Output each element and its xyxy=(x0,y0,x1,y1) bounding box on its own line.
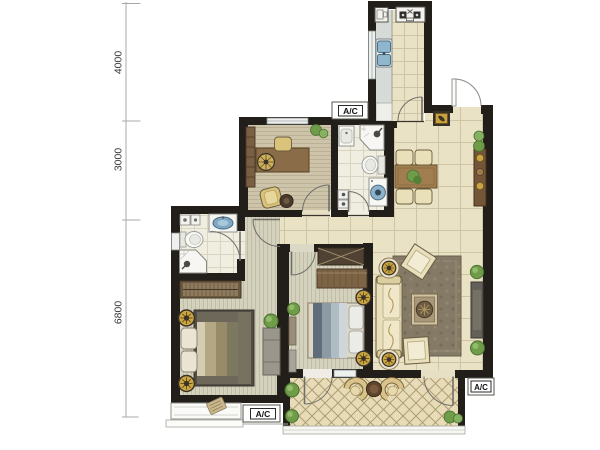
svg-text:A/C: A/C xyxy=(474,383,488,392)
svg-text:3000: 3000 xyxy=(113,148,125,172)
svg-text:A/C: A/C xyxy=(343,106,358,116)
svg-text:6800: 6800 xyxy=(113,301,125,325)
svg-text:A/C: A/C xyxy=(256,409,271,419)
svg-text:4000: 4000 xyxy=(113,51,125,75)
